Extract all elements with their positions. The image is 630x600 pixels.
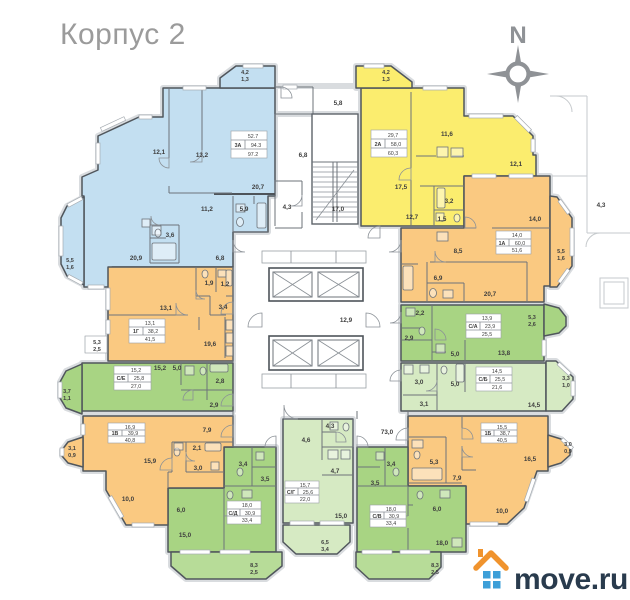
- svg-text:1,3: 1,3: [241, 77, 249, 83]
- svg-text:2,1: 2,1: [193, 445, 202, 452]
- svg-text:4,2: 4,2: [241, 70, 249, 76]
- svg-text:7,9: 7,9: [203, 427, 212, 434]
- svg-text:3,0: 3,0: [194, 465, 203, 472]
- svg-text:5,8: 5,8: [334, 100, 343, 107]
- svg-text:3,1: 3,1: [420, 401, 429, 408]
- svg-text:14,0: 14,0: [512, 233, 522, 239]
- svg-text:С/Д: С/Д: [228, 511, 237, 517]
- svg-text:0,9: 0,9: [564, 449, 572, 455]
- svg-text:3А: 3А: [235, 143, 242, 149]
- svg-text:4,3: 4,3: [283, 204, 292, 211]
- svg-text:23,9: 23,9: [485, 324, 495, 330]
- svg-text:10,0: 10,0: [122, 496, 135, 503]
- svg-text:6,9: 6,9: [434, 275, 443, 282]
- svg-text:5,5: 5,5: [557, 249, 565, 255]
- svg-text:29,7: 29,7: [388, 133, 398, 139]
- svg-text:10,0: 10,0: [496, 508, 509, 515]
- svg-text:3,4: 3,4: [219, 304, 228, 311]
- svg-text:3,4: 3,4: [387, 461, 396, 468]
- svg-text:0,9: 0,9: [68, 453, 76, 459]
- svg-text:8,3: 8,3: [250, 563, 258, 569]
- svg-text:60,3: 60,3: [388, 151, 398, 157]
- svg-text:1Г: 1Г: [133, 329, 139, 335]
- svg-text:6,5: 6,5: [321, 540, 329, 546]
- svg-text:1В: 1В: [112, 431, 119, 437]
- svg-text:1,6: 1,6: [557, 256, 565, 262]
- svg-text:С/Б: С/Б: [478, 377, 487, 383]
- svg-text:2,6: 2,6: [528, 322, 536, 328]
- svg-text:1,2: 1,2: [221, 281, 230, 288]
- svg-text:60,0: 60,0: [515, 241, 525, 247]
- svg-text:1,3: 1,3: [382, 77, 390, 83]
- svg-text:11,6: 11,6: [441, 131, 453, 138]
- svg-text:4,3: 4,3: [597, 202, 606, 209]
- svg-text:58,0: 58,0: [391, 142, 401, 148]
- svg-text:15,9: 15,9: [144, 458, 157, 465]
- svg-text:1,0: 1,0: [562, 383, 570, 389]
- svg-text:3,4: 3,4: [239, 461, 248, 468]
- svg-text:12,7: 12,7: [406, 214, 419, 221]
- svg-text:21,6: 21,6: [492, 385, 502, 391]
- svg-text:17,0: 17,0: [332, 206, 345, 213]
- svg-text:3,5: 3,5: [261, 476, 270, 483]
- svg-text:33,4: 33,4: [386, 521, 396, 527]
- svg-text:С/Г: С/Г: [287, 490, 295, 496]
- svg-text:27,0: 27,0: [131, 384, 141, 390]
- svg-text:2,5: 2,5: [431, 570, 439, 576]
- svg-text:20,7: 20,7: [252, 184, 265, 191]
- svg-text:move.ru: move.ru: [514, 563, 628, 596]
- svg-text:5,3: 5,3: [93, 340, 101, 346]
- svg-text:5,0: 5,0: [173, 365, 182, 372]
- svg-text:3,4: 3,4: [321, 547, 330, 553]
- svg-text:6,0: 6,0: [177, 507, 186, 514]
- svg-text:11,2: 11,2: [201, 206, 213, 213]
- svg-text:51,6: 51,6: [512, 248, 522, 254]
- svg-text:2,5: 2,5: [250, 570, 258, 576]
- svg-text:3,2: 3,2: [445, 198, 454, 205]
- svg-text:2,5: 2,5: [93, 347, 101, 353]
- svg-text:73,0: 73,0: [381, 429, 394, 436]
- svg-text:1А: 1А: [499, 241, 506, 247]
- svg-text:97.2: 97.2: [248, 152, 258, 158]
- svg-text:14,5: 14,5: [528, 402, 541, 409]
- svg-text:25,8: 25,8: [134, 376, 144, 382]
- svg-text:25,5: 25,5: [482, 332, 492, 338]
- svg-text:7,9: 7,9: [453, 475, 462, 482]
- svg-text:3,0: 3,0: [415, 379, 424, 386]
- svg-text:15,0: 15,0: [179, 532, 192, 539]
- svg-text:6,8: 6,8: [299, 152, 308, 159]
- svg-text:52.7: 52.7: [248, 134, 258, 140]
- svg-text:2,9: 2,9: [405, 335, 414, 342]
- svg-text:20,9: 20,9: [130, 255, 143, 262]
- svg-text:1,1: 1,1: [63, 396, 71, 402]
- svg-text:19,6: 19,6: [204, 341, 217, 348]
- svg-text:12,9: 12,9: [340, 317, 353, 324]
- svg-text:3,3: 3,3: [562, 376, 570, 382]
- svg-text:39,9: 39,9: [128, 431, 138, 437]
- svg-text:18,0: 18,0: [386, 507, 396, 513]
- svg-text:15,2: 15,2: [131, 368, 141, 374]
- svg-text:15,0: 15,0: [335, 513, 348, 520]
- svg-text:13,8: 13,8: [498, 350, 511, 357]
- svg-text:18,0: 18,0: [242, 503, 252, 509]
- svg-text:С/В: С/В: [372, 514, 381, 520]
- svg-text:6,0: 6,0: [433, 506, 442, 513]
- svg-text:18,0: 18,0: [436, 540, 449, 547]
- svg-text:25,5: 25,5: [495, 377, 505, 383]
- svg-text:1,6: 1,6: [66, 265, 74, 271]
- svg-text:15,7: 15,7: [300, 483, 310, 489]
- svg-text:2А: 2А: [375, 142, 382, 148]
- svg-text:14,0: 14,0: [529, 216, 542, 223]
- svg-text:6,8: 6,8: [216, 255, 225, 262]
- svg-text:94.3: 94.3: [251, 143, 261, 149]
- svg-text:41,5: 41,5: [145, 337, 155, 343]
- svg-text:С/Е: С/Е: [117, 376, 126, 382]
- svg-text:1,9: 1,9: [205, 280, 214, 287]
- svg-text:12,1: 12,1: [510, 161, 523, 168]
- svg-text:20,7: 20,7: [484, 291, 497, 298]
- svg-text:5,3: 5,3: [528, 315, 536, 321]
- svg-text:5,3: 5,3: [430, 459, 439, 466]
- svg-text:30,9: 30,9: [389, 514, 399, 520]
- svg-text:5,5: 5,5: [66, 258, 74, 264]
- svg-text:40,5: 40,5: [497, 438, 507, 444]
- svg-text:25,6: 25,6: [303, 490, 313, 496]
- svg-text:14,5: 14,5: [492, 369, 502, 375]
- svg-text:13,2: 13,2: [196, 152, 209, 159]
- svg-text:2,2: 2,2: [416, 310, 425, 317]
- svg-text:С/А: С/А: [468, 324, 477, 330]
- svg-text:17,5: 17,5: [395, 184, 408, 191]
- svg-text:3,7: 3,7: [63, 389, 71, 395]
- svg-text:40,8: 40,8: [125, 438, 135, 444]
- svg-text:1,5: 1,5: [438, 216, 447, 223]
- svg-text:4,6: 4,6: [302, 437, 311, 444]
- svg-text:8,5: 8,5: [454, 248, 463, 255]
- svg-text:13,9: 13,9: [482, 316, 492, 322]
- svg-text:Корпус 2: Корпус 2: [60, 18, 186, 51]
- svg-text:38,2: 38,2: [148, 329, 158, 335]
- svg-text:3,5: 3,5: [371, 480, 380, 487]
- svg-text:12,1: 12,1: [153, 149, 166, 156]
- svg-text:4,7: 4,7: [331, 468, 340, 475]
- svg-text:1Б: 1Б: [485, 431, 492, 437]
- svg-text:3,0: 3,0: [564, 442, 572, 448]
- svg-text:4,2: 4,2: [382, 70, 390, 76]
- svg-text:N: N: [509, 22, 526, 49]
- svg-text:13,1: 13,1: [160, 305, 173, 312]
- svg-text:5,9: 5,9: [240, 206, 249, 213]
- svg-text:4,3: 4,3: [326, 423, 335, 430]
- svg-text:33,4: 33,4: [242, 518, 252, 524]
- svg-text:5,0: 5,0: [451, 351, 460, 358]
- svg-text:2,9: 2,9: [210, 402, 219, 409]
- svg-text:38,7: 38,7: [500, 431, 510, 437]
- svg-text:5,0: 5,0: [451, 381, 460, 388]
- svg-text:30,9: 30,9: [245, 511, 255, 517]
- svg-text:15,2: 15,2: [154, 365, 167, 372]
- svg-text:3,1: 3,1: [68, 446, 76, 452]
- svg-text:2,8: 2,8: [216, 378, 225, 385]
- svg-text:8,3: 8,3: [431, 563, 439, 569]
- svg-text:22,0: 22,0: [300, 497, 310, 503]
- svg-text:16,5: 16,5: [524, 456, 537, 463]
- svg-text:13,1: 13,1: [145, 321, 155, 327]
- svg-text:3,6: 3,6: [166, 232, 175, 239]
